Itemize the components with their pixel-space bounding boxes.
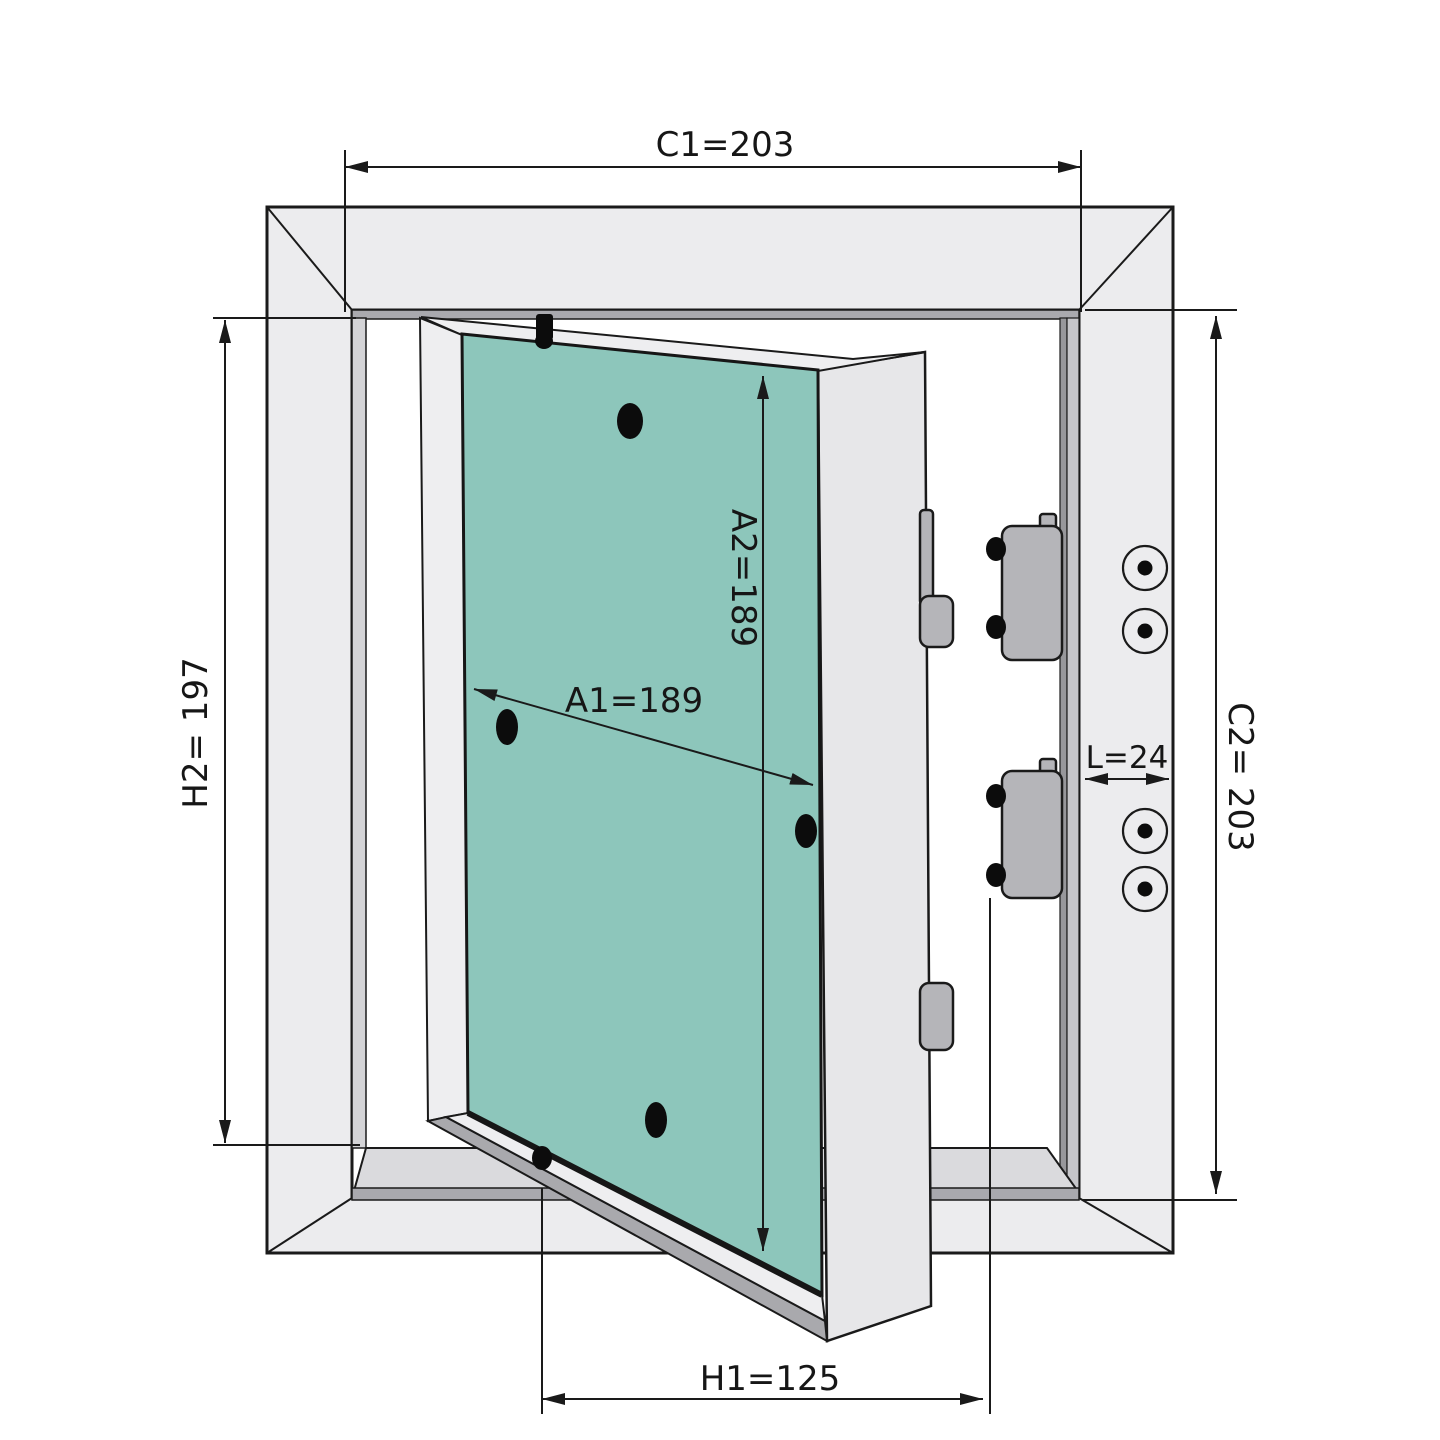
- panel-screw-mark-icon: [795, 814, 817, 848]
- latch-block-lower: [1002, 771, 1062, 898]
- latch-pin-icon: [986, 537, 1006, 561]
- technical-drawing-page: C1=203 H2= 197 C2= 203 A2=189 A1=189 L=2…: [0, 0, 1440, 1440]
- dimension-label-l: L=24: [1086, 740, 1169, 776]
- door-right-side-face: [818, 352, 931, 1341]
- panel-screw-mark-icon: [496, 709, 518, 745]
- latch-hook-foot: [920, 596, 953, 647]
- latch-pin-icon: [986, 784, 1006, 808]
- door-left-face: [420, 318, 468, 1121]
- frame-recess-left-lip: [352, 318, 366, 1148]
- latch-hook-stem: [920, 510, 933, 605]
- dimension-label-a1: A1=189: [565, 681, 703, 721]
- latch-hook-lower: [920, 983, 953, 1050]
- panel-screw-mark-icon: [617, 403, 643, 439]
- hinge-pin-top: [535, 314, 553, 349]
- dimension-label-h1: H1=125: [700, 1359, 841, 1399]
- hinge-pin-bottom: [532, 1146, 552, 1170]
- dimension-label-a2: A2=189: [723, 509, 763, 647]
- latch-pin-icon: [986, 863, 1006, 887]
- dimension-label-c1: C1=203: [656, 125, 795, 165]
- dimension-label-c2: C2= 203: [1220, 702, 1260, 852]
- latch-block-upper: [1002, 526, 1062, 660]
- frame-recess-right-lip: [1067, 318, 1079, 1190]
- frame-recess-top-lip: [352, 310, 1079, 319]
- frame-recess-right-dark-edge: [1060, 318, 1067, 1190]
- panel-screw-mark-icon: [645, 1102, 667, 1138]
- latch-pin-icon: [986, 615, 1006, 639]
- access-panel-diagram: C1=203 H2= 197 C2= 203 A2=189 A1=189 L=2…: [0, 0, 1440, 1440]
- dimension-label-h2: H2= 197: [176, 657, 216, 808]
